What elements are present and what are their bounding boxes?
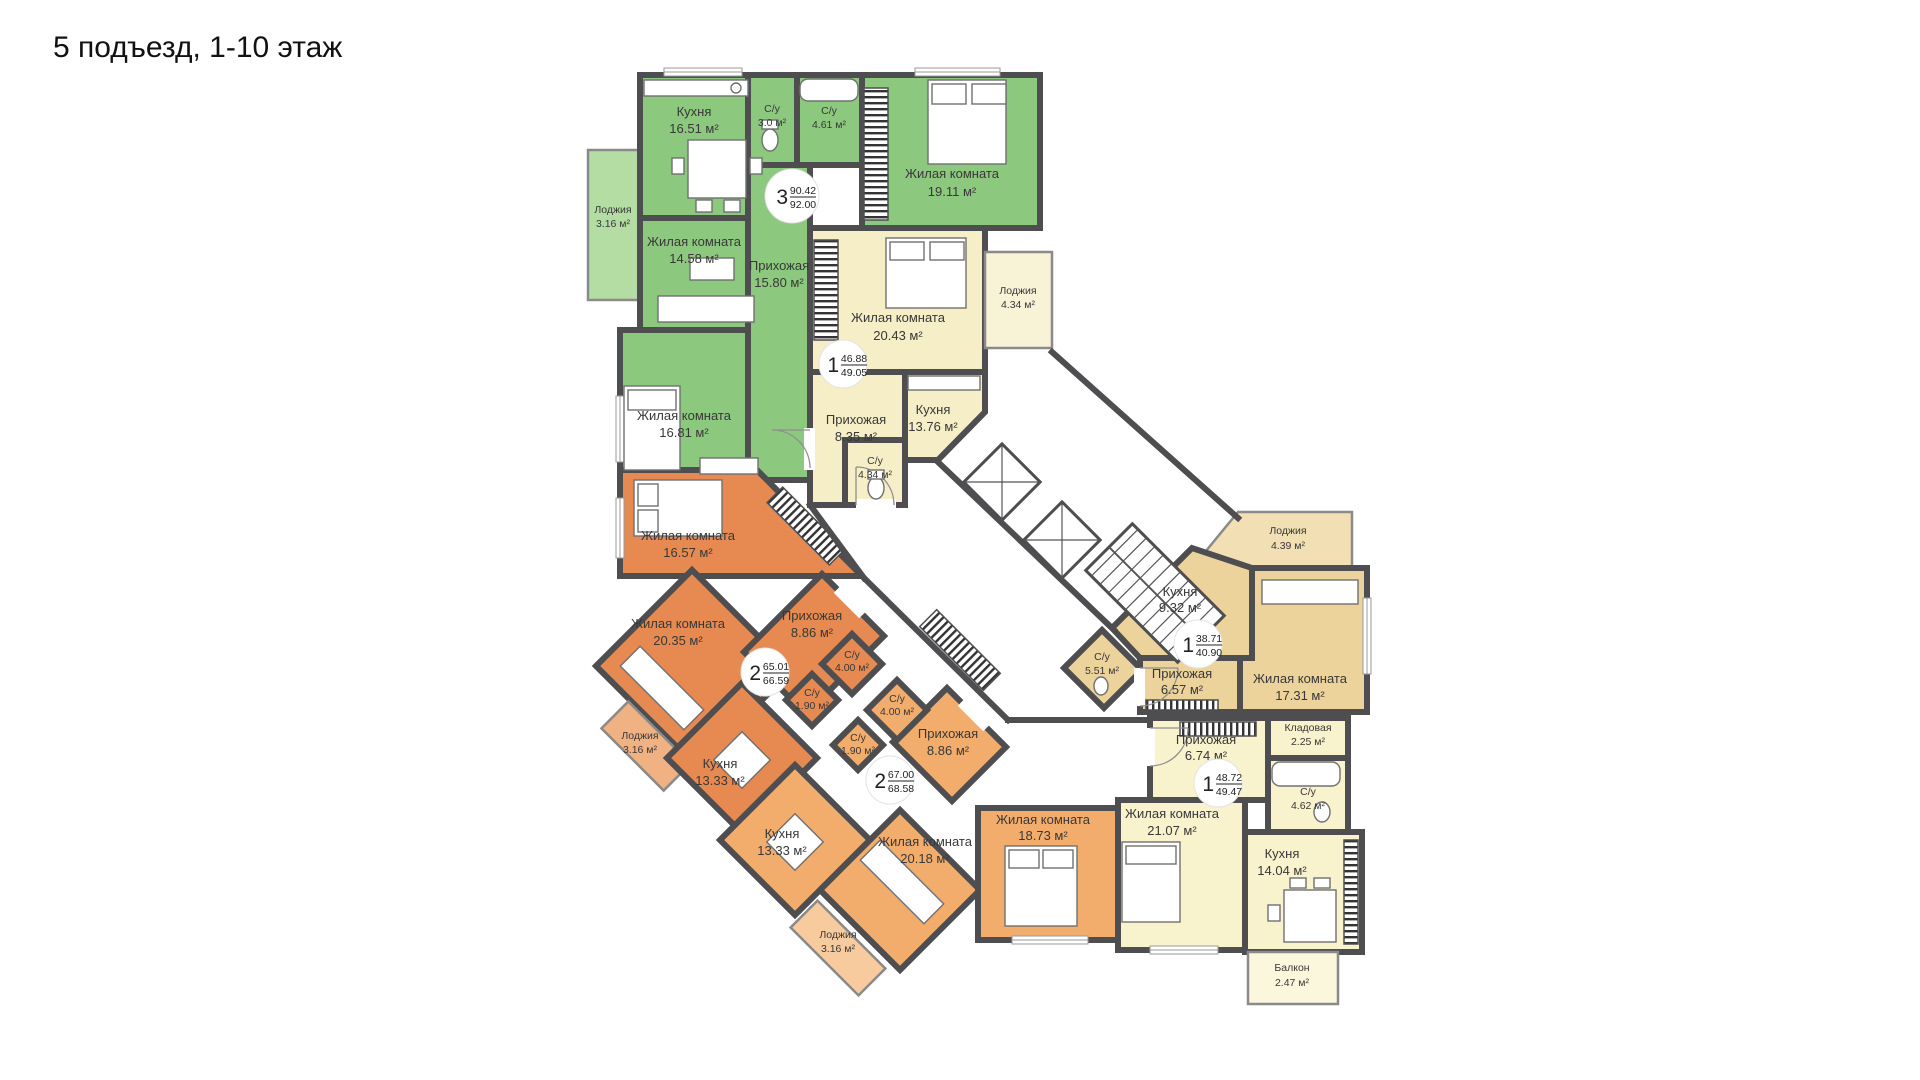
apt1-badge-area-bottom: 92.00 [790,199,816,211]
apt3-su1-label: С/у [844,649,861,661]
apt2-badge-area-bottom: 49.05 [841,367,867,379]
apt2-su-label: С/у [867,455,884,467]
apt5-badge-area-top: 38.71 [1196,633,1222,645]
pillow-icon [930,242,964,260]
apt6-kitchen-area: 14.04 м² [1257,863,1307,878]
apt4-badge-rooms: 2 [874,770,886,793]
apt1-living1-area: 19.11 м² [928,184,977,199]
chair-icon [750,158,762,174]
pillow-icon [1126,846,1176,864]
chair-icon [1290,878,1306,888]
apt6-living-label: Жилая комната [1125,806,1220,821]
page-title: 5 подъезд, 1-10 этаж [53,31,342,64]
apt1-su2-area: 4.61 м² [812,119,847,131]
apt5-hall-area: 6.57 м² [1161,682,1204,697]
apt3-kitchen-area: 13.33 м² [695,773,745,788]
corridor-wardrobe-icon [920,610,1001,691]
chair-icon [672,158,684,174]
apt4-living2-area: 18.73 м² [1018,828,1068,843]
apt6-badge-area-top: 48.72 [1216,772,1242,784]
apt1-su2-label: С/у [821,105,838,117]
apt3-hall-label: Прихожая [782,608,842,623]
sofa-icon [658,296,754,322]
apt5-living-label: Жилая комната [1253,671,1348,686]
apt3-living2-label: Жилая комната [631,616,726,631]
apt5-kitchen-label: Кухня [1163,584,1198,599]
kitchen-counter-icon [908,376,980,390]
apt3-living2-area: 20.35 м² [653,633,703,648]
apt1-living3-label: Жилая комната [637,408,732,423]
apt4-living2-label: Жилая комната [996,812,1091,827]
apt5-loggia-area: 4.39 м² [1271,540,1306,552]
pillow-icon [972,84,1006,104]
apt2-loggia-label: Лоджия [999,285,1036,297]
apt6-living-area: 21.07 м² [1147,823,1197,838]
apt4-hall-area: 8.86 м² [927,743,970,758]
apt2-badge-area-top: 46.88 [841,353,867,365]
door-gap [856,499,896,510]
apt5-badge-rooms: 1 [1182,634,1194,657]
apt6-storage-label: Кладовая [1284,722,1331,734]
chair-icon [696,200,712,212]
apt3-kitchen-label: Кухня [703,756,738,771]
apt3-loggia-label: Лоджия [621,730,658,742]
dining-table-icon [1284,890,1336,942]
apt2-living-area: 20.43 м² [873,328,923,343]
apt4-su1-area: 4.00 м² [880,706,915,718]
toilet-icon [1094,677,1108,695]
apt4-badge-area-bottom: 68.58 [888,783,914,795]
apt1-badge-area-top: 90.42 [790,185,816,197]
core-wall [1052,352,1238,518]
door-gap [1144,728,1155,766]
apt6-su-area: 4.62 м² [1291,800,1326,812]
apt3-loggia-area: 3.16 м² [623,744,658,756]
apt3-badge[interactable]: 2 65.01 66.59 [741,648,789,696]
apt4-living1-area: 20.18 м² [900,851,950,866]
desk-icon [700,458,758,474]
sink-icon [731,83,741,93]
apt3-living1-label: Жилая комната [641,528,736,543]
apt2-badge-rooms: 1 [827,354,839,377]
pillow-icon [1009,850,1039,868]
apt3-hall-area: 8.86 м² [791,625,834,640]
apt2-badge[interactable]: 1 46.88 49.05 [819,340,867,388]
apt1-badge[interactable]: 3 90.42 92.00 [765,169,819,223]
toilet-icon [762,129,778,151]
apt2-loggia-area: 4.34 м² [1001,299,1036,311]
apt1-living2-label: Жилая комната [647,234,742,249]
chair-icon [724,200,740,212]
apt4-su1-label: С/у [889,693,906,705]
apt1-badge-rooms: 3 [776,186,788,209]
apt4-loggia-label: Лоджия [819,929,856,941]
apt1-kitchen-label: Кухня [677,104,712,119]
apt1-hall-area: 15.80 м² [754,275,804,290]
apt4-su2-area: 1.90 м² [841,745,876,757]
apt1-hall-label: Прихожая [749,258,809,273]
apt1-su1-area: 3.0 м² [758,117,787,129]
apt3-badge-area-top: 65.01 [763,661,789,673]
apt2-living-label: Жилая комната [851,310,946,325]
apt5-living-area: 17.31 м² [1275,688,1325,703]
apt1-kitchen-area: 16.51 м² [669,121,719,136]
apt6-badge-rooms: 1 [1202,773,1214,796]
pillow-icon [1043,850,1073,868]
elevator-icon [964,444,1040,520]
floor-plan: 5 подъезд, 1-10 этаж [0,0,1920,1080]
bathtub-icon [800,79,858,101]
apt4-kitchen-area: 13.33 м² [757,843,807,858]
apt2-kitchen-label: Кухня [916,402,951,417]
apt6-hall-label: Прихожая [1176,732,1236,747]
wardrobe-icon [814,240,838,340]
apt2-hall-area: 8.35 м² [835,429,878,444]
pillow-icon [932,84,966,104]
apt6-balcony-area: 2.47 м² [1275,977,1310,989]
apt1-living2-area: 14.58 м² [669,251,719,266]
apt6-balcony-label: Балкон [1274,962,1309,974]
apt3-badge-rooms: 2 [749,662,761,685]
apt6-badge-area-bottom: 49.47 [1216,786,1242,798]
apt5-su-area: 5.51 м² [1085,665,1120,677]
apt4-loggia-area: 3.16 м² [821,943,856,955]
apt2-hall-label: Прихожая [826,412,886,427]
apt4-hall-label: Прихожая [918,726,978,741]
apt4-badge-area-top: 67.00 [888,769,914,781]
apt6-storage-area: 2.25 м² [1291,736,1326,748]
chair-icon [1268,905,1280,921]
apt3-living1-area: 16.57 м² [663,545,713,560]
apt2-kitchen-area: 13.76 м² [908,419,958,434]
chair-icon [1314,878,1330,888]
apt6-su-label: С/у [1300,786,1317,798]
apt4-living1-label: Жилая комната [878,834,973,849]
apt5-badge-area-bottom: 40.90 [1196,647,1222,659]
pillow-icon [638,484,658,506]
apt6-badge[interactable]: 1 48.72 49.47 [1194,759,1242,807]
apt1-su1-label: С/у [764,103,781,115]
apt5-loggia-label: Лоджия [1269,525,1306,537]
door-gap [1134,668,1145,706]
apt5-kitchen-area: 9.32 м² [1159,600,1202,615]
apt3-su2-area: 1.90 м² [795,700,830,712]
wardrobe-icon [864,88,888,220]
apt3-su1-area: 4.00 м² [835,662,870,674]
apt3-su2-label: С/у [804,687,821,699]
pillow-icon [628,390,676,410]
apt5-badge[interactable]: 1 38.71 40.90 [1174,620,1222,668]
apt4-badge[interactable]: 2 67.00 68.58 [866,756,914,804]
apt2-su-area: 4.34 м² [858,469,893,481]
dining-table-icon [688,140,746,198]
apt1-living1-label: Жилая комната [905,166,1000,181]
kitchen-appliances-icon [1344,840,1358,944]
apt1-loggia-label: Лоджия [594,204,631,216]
apt4-kitchen-label: Кухня [765,826,800,841]
bathtub-icon [1272,762,1340,786]
apt4-su2-label: С/у [850,732,867,744]
apt6-kitchen-label: Кухня [1265,846,1300,861]
apt5-hall-label: Прихожая [1152,666,1212,681]
pillow-icon [890,242,924,260]
apt3-badge-area-bottom: 66.59 [763,675,789,687]
apt1-loggia-area: 3.16 м² [596,218,631,230]
apt5-su-label: С/у [1094,651,1111,663]
apt1-living3-area: 16.81 м² [659,425,709,440]
sofa-icon [1262,580,1358,604]
